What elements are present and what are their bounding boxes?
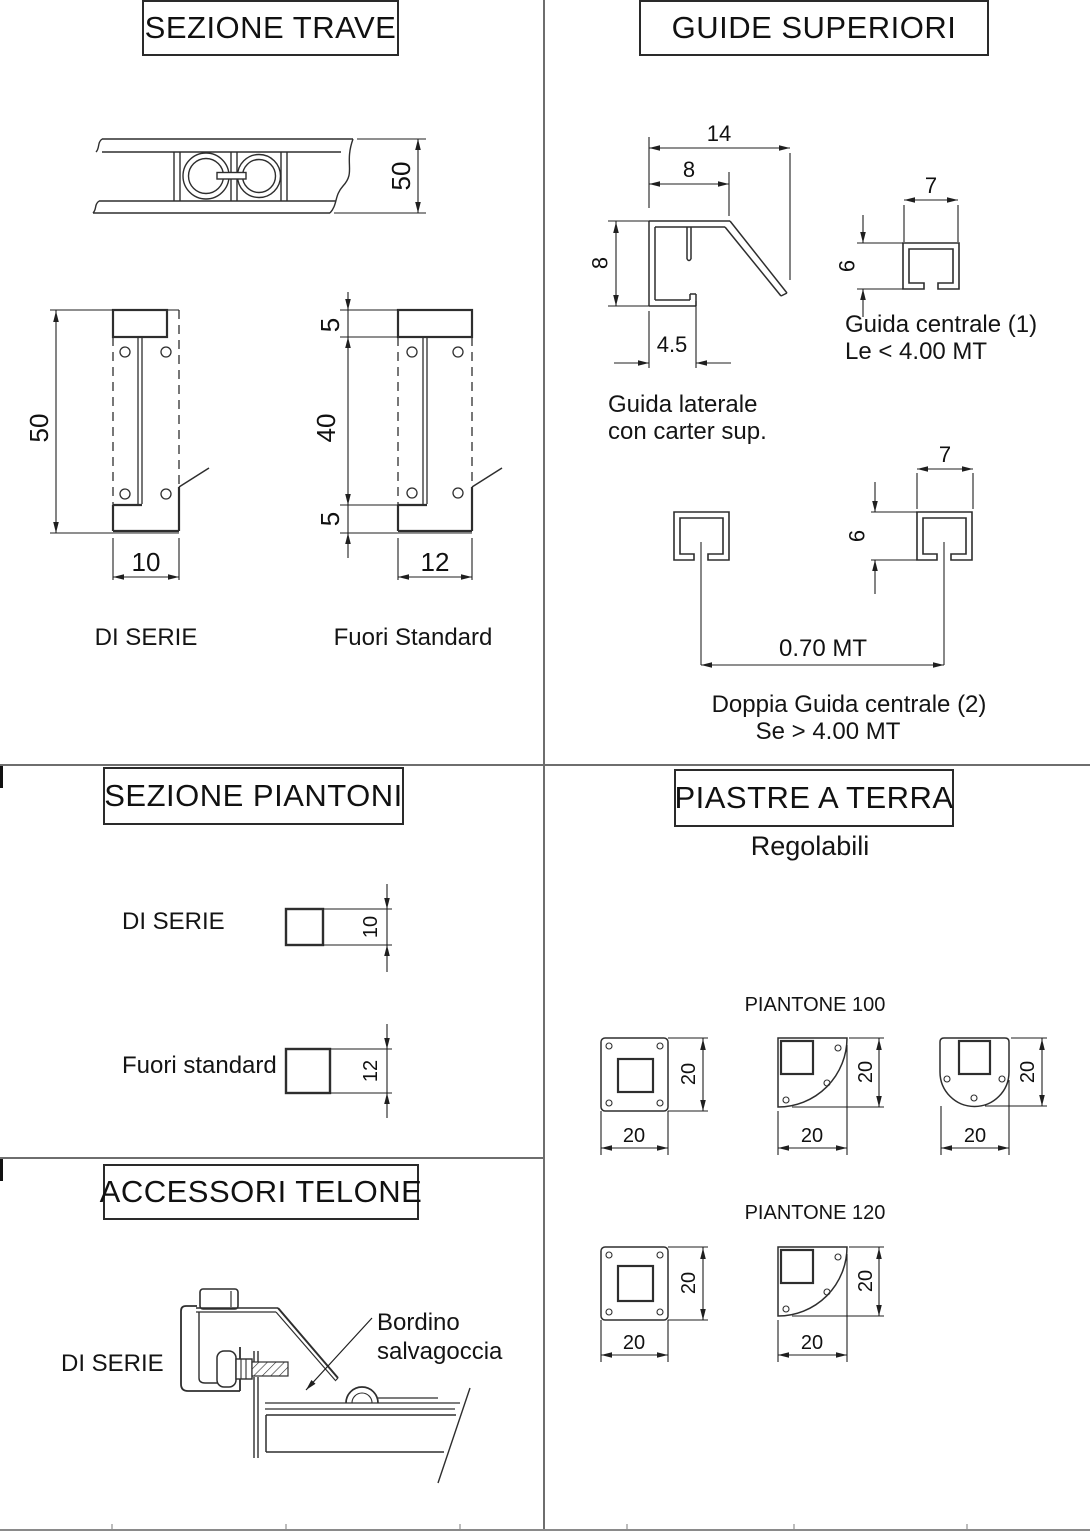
dim-label: 4.5 xyxy=(657,332,688,357)
dim-label: 20 xyxy=(678,1272,700,1294)
title-text: ACCESSORI TELONE xyxy=(100,1174,423,1210)
title-guide-superiori: GUIDE SUPERIORI xyxy=(639,0,989,56)
label-piantoni-fuori-standard: Fuori standard xyxy=(122,1053,277,1080)
bottom-tick xyxy=(111,1524,113,1529)
profile-fuori-standard-drawing: 5 40 5 12 xyxy=(300,275,520,590)
title-text: SEZIONE TRAVE xyxy=(145,10,397,46)
dim-label: 20 xyxy=(623,1332,645,1354)
title-text: GUIDE SUPERIORI xyxy=(672,10,957,46)
title-text: SEZIONE PIANTONI xyxy=(104,778,403,814)
dim-label: 40 xyxy=(311,414,341,443)
bottom-tick xyxy=(793,1524,795,1529)
piastre-piantone-100-drawing: 20 20 20 20 20 20 xyxy=(590,1030,1050,1165)
left-edge-mark-2 xyxy=(0,1159,3,1181)
dim-label: 6 xyxy=(845,530,870,542)
guida-laterale-drawing: 14 8 8 4.5 xyxy=(580,110,805,380)
title-text: PIASTRE A TERRA xyxy=(674,780,953,816)
dim-label: 12 xyxy=(421,547,450,577)
dim-label: 20 xyxy=(855,1270,877,1292)
dim-label: 8 xyxy=(683,157,695,182)
beam-section-drawing: 50 xyxy=(75,105,445,260)
title-sezione-piantoni: SEZIONE PIANTONI xyxy=(103,767,404,825)
dim-label: 7 xyxy=(939,442,951,467)
label-guida-centrale: Guida centrale (1) Le < 4.00 MT xyxy=(845,312,1037,366)
dim-label: 6 xyxy=(835,260,860,272)
dim-label: 5 xyxy=(315,318,345,332)
label-fuori-standard-trave: Fuori Standard xyxy=(313,625,513,652)
label-piantone-100: PIANTONE 100 xyxy=(665,994,965,1016)
label-doppia-guida-2: Se > 4.00 MT xyxy=(628,719,1028,746)
label-doppia-guida-1: Doppia Guida centrale (2) xyxy=(649,692,1049,719)
dim-label: 50 xyxy=(386,162,416,191)
bottom-tick xyxy=(626,1524,628,1529)
label-bordino-salvagoccia: Bordino salvagoccia xyxy=(377,1309,502,1367)
dim-label: 20 xyxy=(801,1332,823,1354)
horizontal-divider-left xyxy=(0,1157,544,1159)
label-di-serie-trave: DI SERIE xyxy=(46,625,246,652)
dim-label: 7 xyxy=(925,173,937,198)
dim-label: 20 xyxy=(623,1125,645,1147)
dim-label: 8 xyxy=(588,257,613,269)
label-piantoni-di-serie: DI SERIE xyxy=(122,909,225,936)
label-piantone-120: PIANTONE 120 xyxy=(665,1202,965,1224)
profile-di-serie-drawing: 50 10 xyxy=(20,290,235,590)
label-accessori-di-serie: DI SERIE xyxy=(61,1351,164,1378)
title-piastre-a-terra: PIASTRE A TERRA xyxy=(674,769,954,827)
piantone-fuori-standard-drawing: 12 xyxy=(280,1020,410,1130)
bottom-tick xyxy=(459,1524,461,1529)
dim-label: 20 xyxy=(1017,1061,1039,1083)
dim-label: 10 xyxy=(132,547,161,577)
bottom-tick xyxy=(285,1524,287,1529)
technical-sheet: SEZIONE TRAVE GUIDE SUPERIORI SEZIONE PI… xyxy=(0,0,1090,1536)
guida-centrale-drawing: 7 6 xyxy=(825,165,980,325)
bottom-tick xyxy=(966,1524,968,1529)
label-regolabili: Regolabili xyxy=(660,831,960,861)
title-accessori-telone: ACCESSORI TELONE xyxy=(103,1164,419,1220)
dim-label: 10 xyxy=(360,916,382,938)
dim-label: 12 xyxy=(360,1060,382,1082)
horizontal-divider-mid xyxy=(0,764,1090,766)
bottom-border xyxy=(0,1529,1090,1531)
dim-label: 20 xyxy=(678,1063,700,1085)
title-sezione-trave: SEZIONE TRAVE xyxy=(142,0,399,56)
piantone-di-serie-drawing: 10 xyxy=(280,880,410,980)
dim-label: 0.70 MT xyxy=(779,635,867,662)
dim-label: 14 xyxy=(707,121,731,146)
left-edge-mark-1 xyxy=(0,766,3,788)
dim-label: 20 xyxy=(855,1061,877,1083)
piastre-piantone-120-drawing: 20 20 20 20 xyxy=(590,1238,1050,1368)
dim-label: 50 xyxy=(24,414,54,443)
doppia-guida-drawing: 7 6 0.70 MT xyxy=(640,430,990,675)
dim-label: 5 xyxy=(315,512,345,526)
dim-label: 20 xyxy=(801,1125,823,1147)
dim-label: 20 xyxy=(964,1125,986,1147)
